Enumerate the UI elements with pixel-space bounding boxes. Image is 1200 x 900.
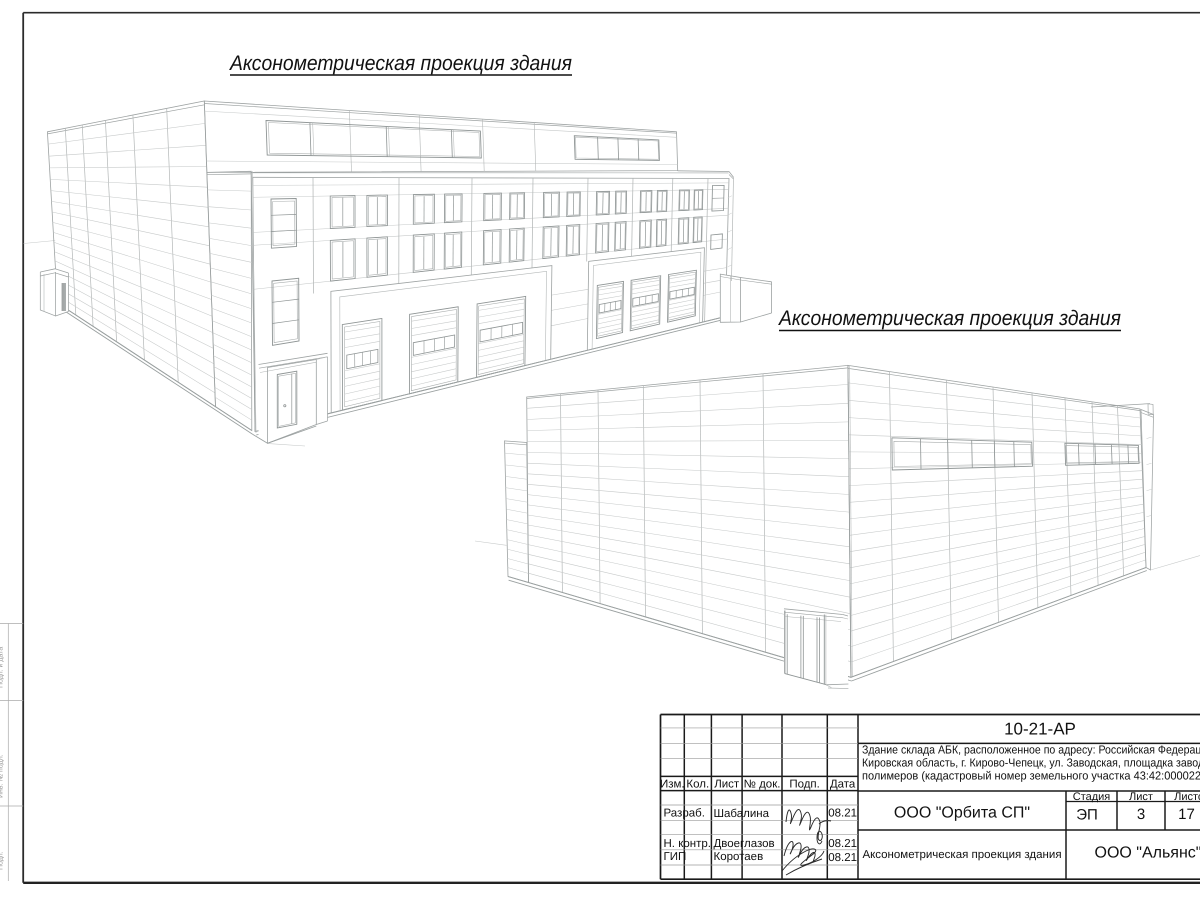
svg-text:Двоеглазов: Двоеглазов — [714, 838, 775, 850]
svg-text:ООО "Орбита СП": ООО "Орбита СП" — [894, 805, 1030, 822]
svg-text:Лист: Лист — [714, 779, 740, 791]
svg-text:Подп.: Подп. — [0, 851, 5, 870]
svg-text:Кол.: Кол. — [686, 779, 709, 791]
svg-text:Разраб.: Разраб. — [664, 808, 705, 820]
svg-text:Дата: Дата — [830, 779, 856, 791]
svg-text:Листов: Листов — [1174, 791, 1200, 803]
svg-text:ООО "Альянс": ООО "Альянс" — [1095, 845, 1200, 862]
svg-text:ГИП: ГИП — [664, 851, 687, 863]
svg-text:Стадия: Стадия — [1073, 791, 1111, 803]
svg-text:Коротаев: Коротаев — [714, 851, 764, 863]
svg-text:3: 3 — [1137, 806, 1145, 823]
svg-text:Аксонометрическая проекция зда: Аксонометрическая проекция здания — [862, 849, 1061, 861]
svg-text:Инв. № подл.: Инв. № подл. — [0, 754, 5, 798]
svg-text:08.21: 08.21 — [828, 852, 857, 864]
svg-text:Здание склада АБК, расположенн: Здание склада АБК, расположенное по адре… — [862, 744, 1200, 757]
svg-text:08.21: 08.21 — [828, 838, 857, 850]
svg-text:№ док.: № док. — [744, 779, 781, 791]
svg-text:08.21: 08.21 — [828, 808, 857, 820]
svg-text:Аксонометрическая проекция зда: Аксонометрическая проекция здания — [228, 52, 572, 75]
svg-text:Изм.: Изм. — [660, 779, 685, 791]
svg-text:полимеров (кадастровый номер з: полимеров (кадастровый номер земельного … — [862, 770, 1200, 783]
svg-text:ЭП: ЭП — [1076, 807, 1098, 824]
svg-text:10-21-АР: 10-21-АР — [1004, 720, 1076, 739]
svg-text:Подп.: Подп. — [789, 779, 820, 791]
svg-text:Лист: Лист — [1129, 791, 1153, 803]
svg-text:Н. контр.: Н. контр. — [664, 838, 711, 850]
svg-text:Шабалина: Шабалина — [714, 808, 770, 820]
svg-text:17: 17 — [1178, 806, 1195, 823]
svg-text:Аксонометрическая проекция зда: Аксонометрическая проекция здания — [777, 307, 1121, 330]
svg-text:Подп. и дата: Подп. и дата — [0, 647, 5, 688]
svg-text:Кировская область, г. Кирово-Ч: Кировская область, г. Кирово-Чепецк, ул.… — [862, 757, 1200, 770]
